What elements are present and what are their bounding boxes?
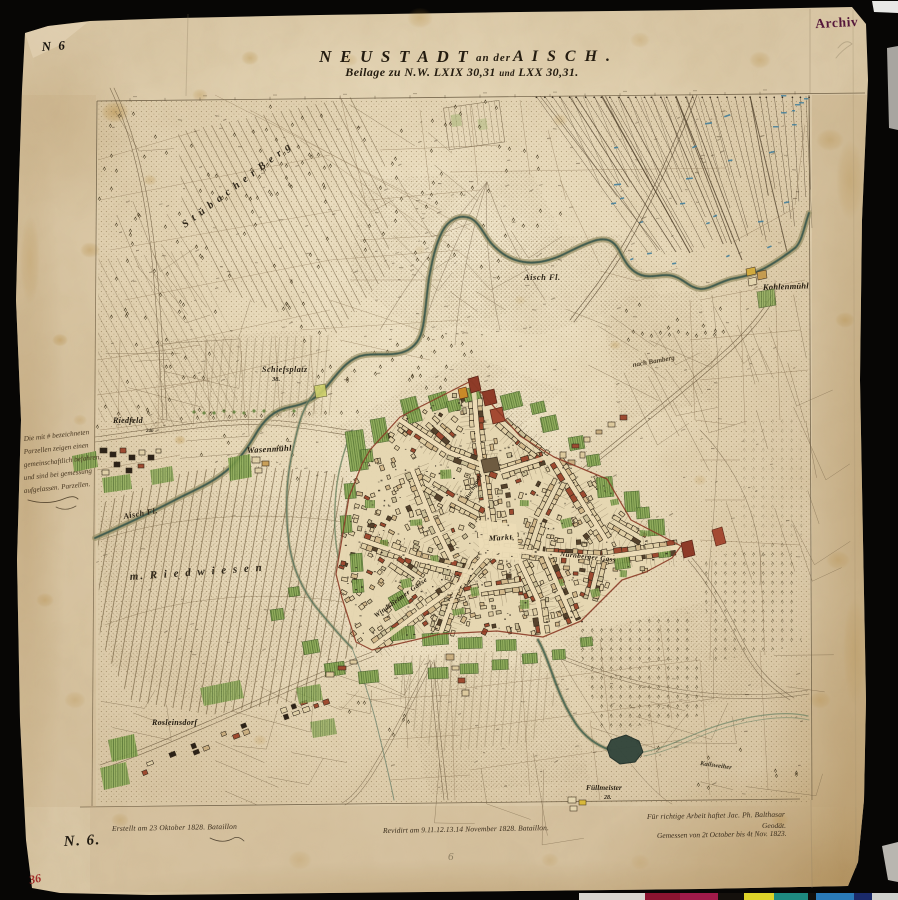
- svg-text:Markt: Markt: [488, 532, 513, 543]
- svg-text:an der: an der: [476, 52, 511, 64]
- svg-text:A I S C H .: A I S C H .: [512, 48, 613, 65]
- svg-text:6: 6: [448, 851, 454, 863]
- svg-text:Schiefsplatz: Schiefsplatz: [262, 365, 308, 374]
- svg-text:Archiv: Archiv: [815, 14, 859, 31]
- svg-text:N 6: N 6: [40, 37, 67, 54]
- svg-text:Riedfeld: Riedfeld: [112, 416, 144, 425]
- svg-text:Rosleinsdorf: Rosleinsdorf: [151, 718, 198, 727]
- svg-text:Aisch Fl.: Aisch Fl.: [523, 272, 561, 282]
- svg-text:N E U S T A D T: N E U S T A D T: [318, 47, 470, 66]
- svg-text:38.: 38.: [271, 376, 281, 383]
- svg-text:Füllmeister: Füllmeister: [586, 783, 622, 792]
- svg-text:28.: 28.: [603, 795, 612, 801]
- svg-text:Beilage zu N.W. LXIX 30,31 u: Beilage zu N.W. LXIX 30,31 und LXX 30,31…: [344, 65, 578, 79]
- svg-text:N. 6.: N. 6.: [62, 832, 101, 850]
- svg-text:246: 246: [145, 429, 154, 434]
